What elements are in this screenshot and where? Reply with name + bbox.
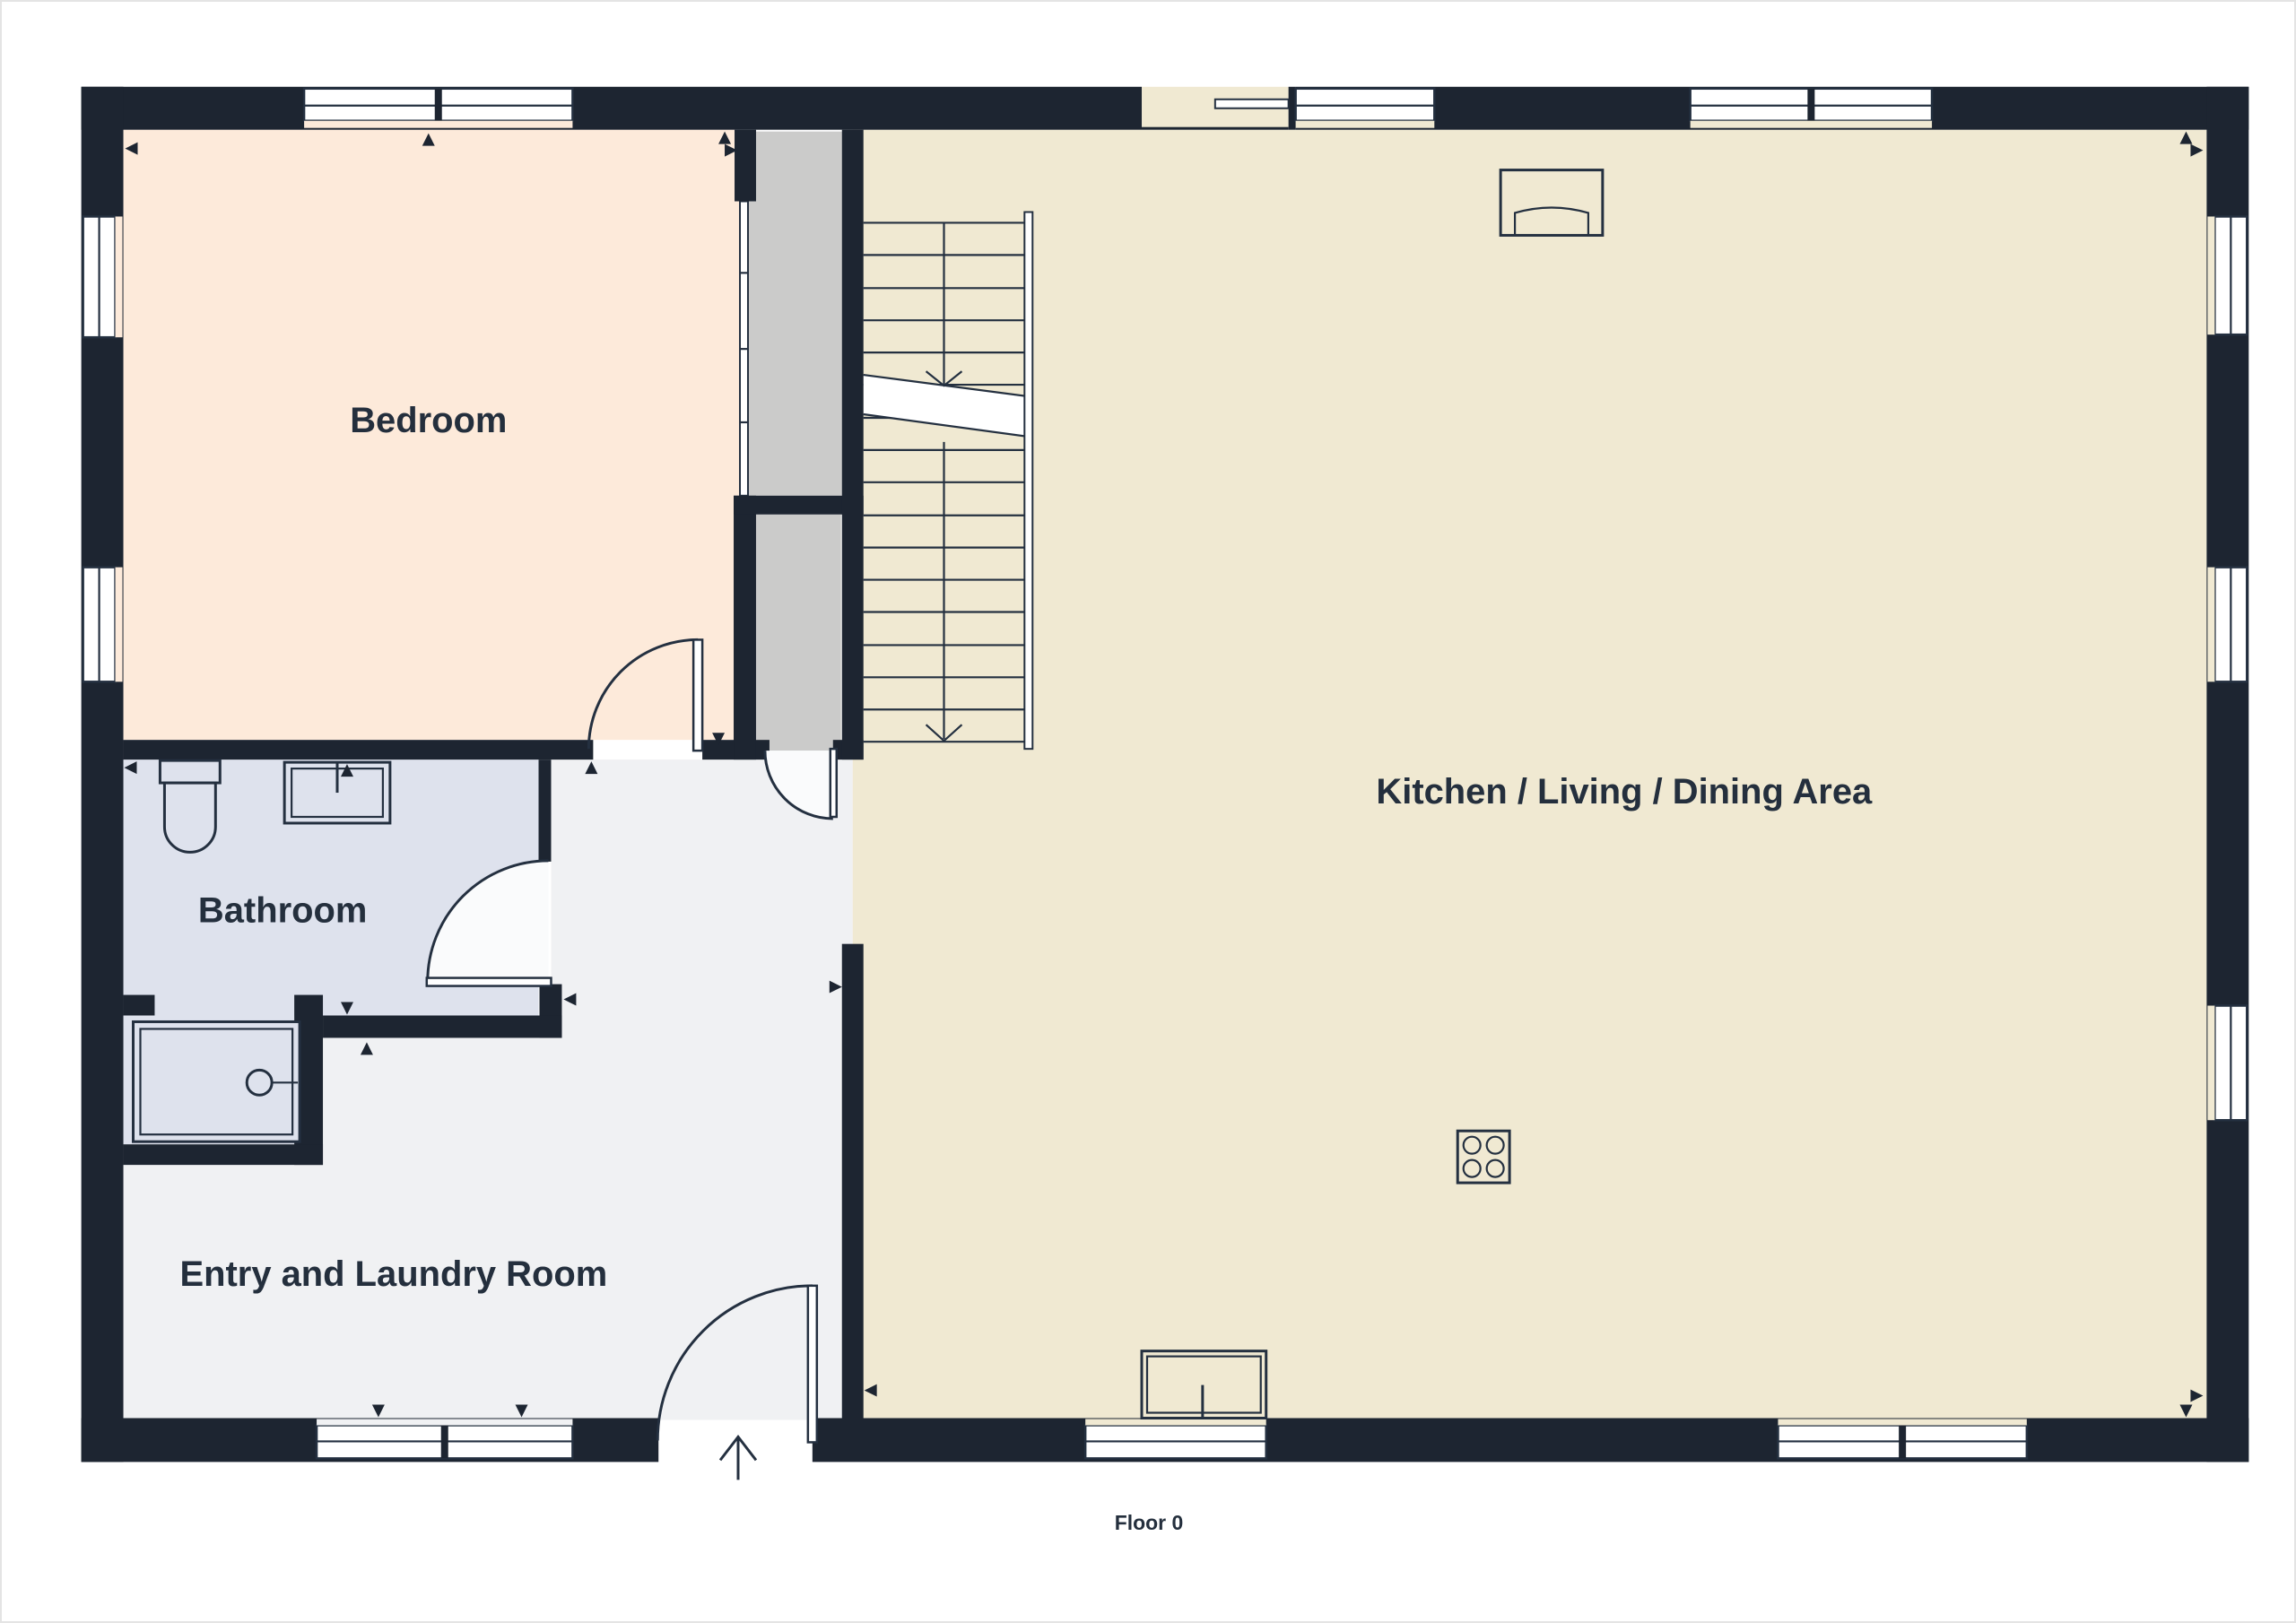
- entrance-arrow: [720, 1436, 756, 1480]
- wall-shower-stub: [124, 995, 155, 1016]
- toilet: [160, 760, 220, 852]
- bedroom-label: Bedroom: [350, 401, 507, 440]
- wardrobe-lower: [756, 515, 841, 751]
- stair-handrail: [1024, 212, 1032, 749]
- shower: [134, 1021, 300, 1141]
- kitchen-sink: [1500, 170, 1603, 236]
- floor-label: Floor 0: [1115, 1511, 1183, 1534]
- wall-bathroom-bottom: [323, 1015, 561, 1037]
- floor-plan-page: Bedroom Bathroom Entry and Laundry Room …: [0, 0, 2296, 1623]
- wall-opening-inner-line: [1142, 127, 1289, 130]
- wardrobe: [748, 132, 842, 751]
- counter-appliance: [1142, 1351, 1266, 1419]
- wall-bottom-right: [813, 1419, 2248, 1462]
- wall-bathroom-right-stub: [539, 759, 552, 862]
- bathroom-label: Bathroom: [198, 891, 367, 931]
- sliding-panel: [1215, 100, 1289, 108]
- wardrobe-sliding-doors: [740, 202, 748, 496]
- wall-top-left: [82, 87, 1142, 130]
- entry-laundry-label: Entry and Laundry Room: [180, 1254, 608, 1294]
- wall-stairs-left: [842, 130, 864, 759]
- floor-plan: Bedroom Bathroom Entry and Laundry Room …: [2, 2, 2294, 1621]
- wardrobe-upper: [748, 132, 842, 496]
- kitchen-living-dining-label: Kitchen / Living / Dining Area: [1376, 772, 1873, 811]
- wall-closet-left: [734, 496, 756, 759]
- wall-hall-kitchen: [842, 944, 864, 1420]
- wall-bedroom-bottom-a: [124, 740, 594, 759]
- bathroom-sink: [284, 762, 390, 823]
- cooktop: [1457, 1131, 1509, 1183]
- wall-closet-stub: [735, 130, 756, 202]
- wall-shower-bottom: [124, 1144, 324, 1165]
